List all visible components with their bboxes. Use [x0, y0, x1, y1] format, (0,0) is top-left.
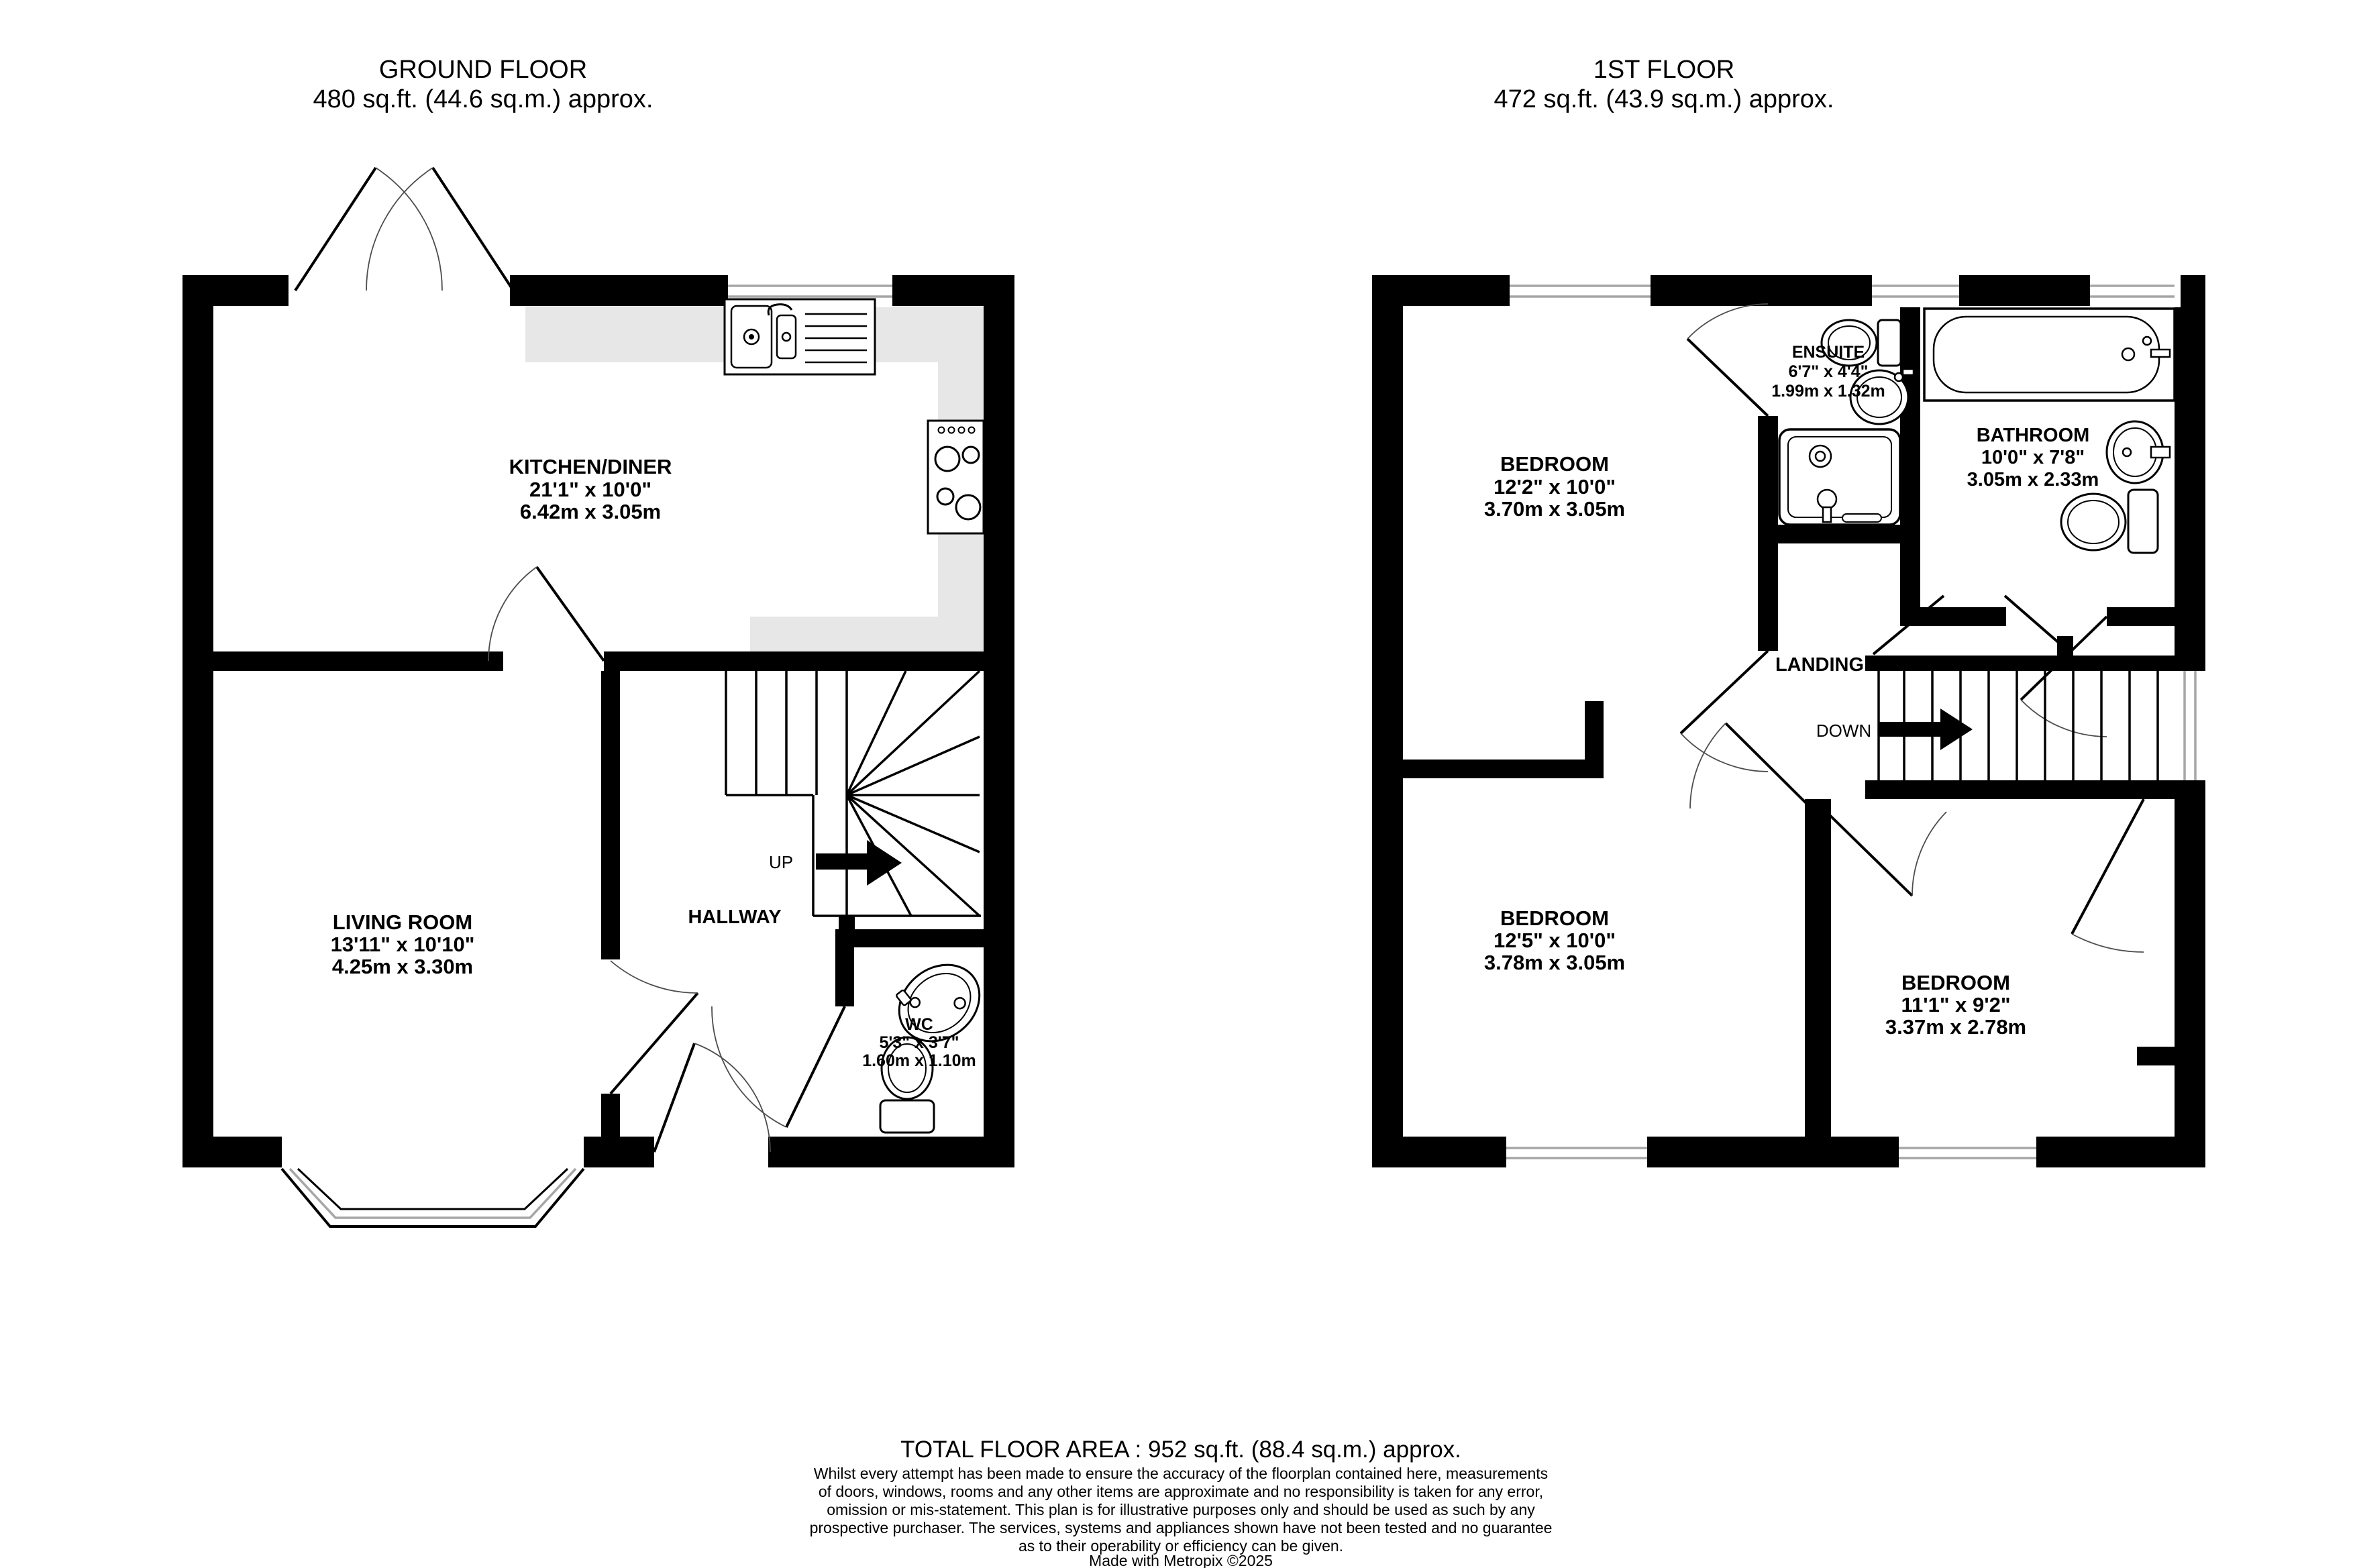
bathroom-label: BATHROOM 10'0" x 7'8" 3.05m x 2.33m [1967, 425, 2099, 490]
wc-name: WC [905, 1015, 933, 1034]
floorplan-canvas: GROUND FLOOR 480 sq.ft. (44.6 sq.m.) app… [0, 0, 2353, 1568]
french-door [289, 168, 513, 307]
ensuite-size-metric: 1.99m x 1.32m [1771, 382, 1885, 401]
bathroom-door [2021, 617, 2107, 737]
down-arrow-icon [1879, 709, 1973, 750]
ground-floor-title: GROUND FLOOR [379, 56, 587, 84]
ensuite-door [1687, 304, 1768, 416]
bathroom-basin-icon [2107, 421, 2170, 483]
bedroom3-second-door [2072, 799, 2144, 952]
hob-icon [928, 421, 984, 533]
kitchen-door [488, 567, 604, 661]
living-room-size-imperial: 13'11" x 10'10" [331, 933, 475, 956]
footer: TOTAL FLOOR AREA : 952 sq.ft. (88.4 sq.m… [810, 1436, 1553, 1568]
total-floor-area: TOTAL FLOOR AREA : 952 sq.ft. (88.4 sq.m… [900, 1436, 1461, 1463]
living-room-label: LIVING ROOM 13'11" x 10'10" 4.25m x 3.30… [331, 910, 475, 978]
bedroom1-size-metric: 3.70m x 3.05m [1484, 497, 1625, 521]
ensuite-window [1872, 274, 1959, 307]
wc-door [712, 1006, 845, 1127]
kitchen-name: KITCHEN/DINER [509, 455, 672, 478]
ensuite-size-imperial: 6'7" x 4'4" [1788, 362, 1868, 381]
bedroom3-size-imperial: 11'1" x 9'2" [1901, 993, 2010, 1016]
bedroom2-name: BEDROOM [1500, 906, 1609, 930]
ensuite-name: ENSUITE [1792, 343, 1865, 362]
stairs-up [726, 671, 981, 929]
up-label: UP [769, 852, 793, 872]
bedroom3-size-metric: 3.37m x 2.78m [1885, 1015, 2026, 1039]
bathroom-size-imperial: 10'0" x 7'8" [1981, 447, 2085, 468]
bedroom2-label: BEDROOM 12'5" x 10'0" 3.78m x 3.05m [1484, 906, 1625, 974]
kitchen-label: KITCHEN/DINER 21'1" x 10'0" 6.42m x 3.05… [509, 455, 672, 523]
bedroom2-size-metric: 3.78m x 3.05m [1484, 951, 1625, 974]
bedroom3-window [1899, 1135, 2036, 1169]
front-door [654, 1043, 770, 1169]
bedroom2-door [1690, 723, 1812, 808]
bathroom-toilet-icon [2061, 490, 2158, 553]
stairs-window [2173, 671, 2207, 780]
floorplan-page: GROUND FLOOR 480 sq.ft. (44.6 sq.m.) app… [0, 0, 2353, 1568]
disclaimer-line-3: omission or mis-statement. This plan is … [827, 1501, 1535, 1518]
hallway-label: HALLWAY [688, 906, 781, 928]
bedroom1-name: BEDROOM [1500, 452, 1609, 476]
first-outer-walls [1372, 275, 2205, 1167]
landing-label: LANDING [1775, 654, 1864, 676]
down-label: DOWN [1816, 721, 1871, 741]
bedroom3-door [1826, 812, 1946, 896]
up-arrow-icon [816, 840, 902, 886]
kitchen-size-metric: 6.42m x 3.05m [520, 500, 661, 523]
disclaimer-line-1: Whilst every attempt has been made to en… [814, 1465, 1548, 1482]
disclaimer-line-2: of doors, windows, rooms and any other i… [819, 1483, 1543, 1500]
living-room-name: LIVING ROOM [333, 910, 472, 934]
bay-window [282, 1135, 584, 1226]
ground-floor-subtitle: 480 sq.ft. (44.6 sq.m.) approx. [313, 85, 653, 113]
bedroom2-size-imperial: 12'5" x 10'0" [1494, 929, 1616, 952]
kitchen-sink-icon [725, 299, 875, 374]
first-floor-plan: BEDROOM 12'2" x 10'0" 3.70m x 3.05m ENSU… [1372, 274, 2207, 1169]
bedroom3-name: BEDROOM [1901, 971, 2010, 994]
metropix-credit: Made with Metropix ©2025 [1089, 1552, 1273, 1568]
ground-floor-plan: KITCHEN/DINER 21'1" x 10'0" 6.42m x 3.05… [182, 168, 1014, 1226]
disclaimer-line-4: prospective purchaser. The services, sys… [810, 1519, 1553, 1536]
winder-treads [847, 671, 980, 916]
bathtub-icon [1924, 309, 2175, 401]
shower-icon [1779, 429, 1900, 525]
bathroom-name: BATHROOM [1977, 425, 2090, 446]
bedroom1-size-imperial: 12'2" x 10'0" [1494, 475, 1616, 499]
kitchen-size-imperial: 21'1" x 10'0" [529, 478, 651, 501]
living-room-door [611, 961, 698, 1094]
bathroom-size-metric: 3.05m x 2.33m [1967, 469, 2099, 490]
wc-size-metric: 1.60m x 1.10m [862, 1051, 976, 1070]
first-floor-subtitle: 472 sq.ft. (43.9 sq.m.) approx. [1494, 85, 1834, 113]
wc-size-imperial: 5'3" x 3'7" [879, 1033, 959, 1052]
living-room-size-metric: 4.25m x 3.30m [332, 955, 473, 978]
bedroom1-window [1510, 274, 1651, 307]
bedroom1-label: BEDROOM 12'2" x 10'0" 3.70m x 3.05m [1484, 452, 1625, 521]
bedroom2-window [1506, 1135, 1647, 1169]
stairs-down [1879, 671, 2158, 780]
bathroom-window [2090, 274, 2181, 307]
bedroom3-label: BEDROOM 11'1" x 9'2" 3.37m x 2.78m [1885, 971, 2026, 1039]
first-floor-title: 1ST FLOOR [1593, 56, 1734, 84]
